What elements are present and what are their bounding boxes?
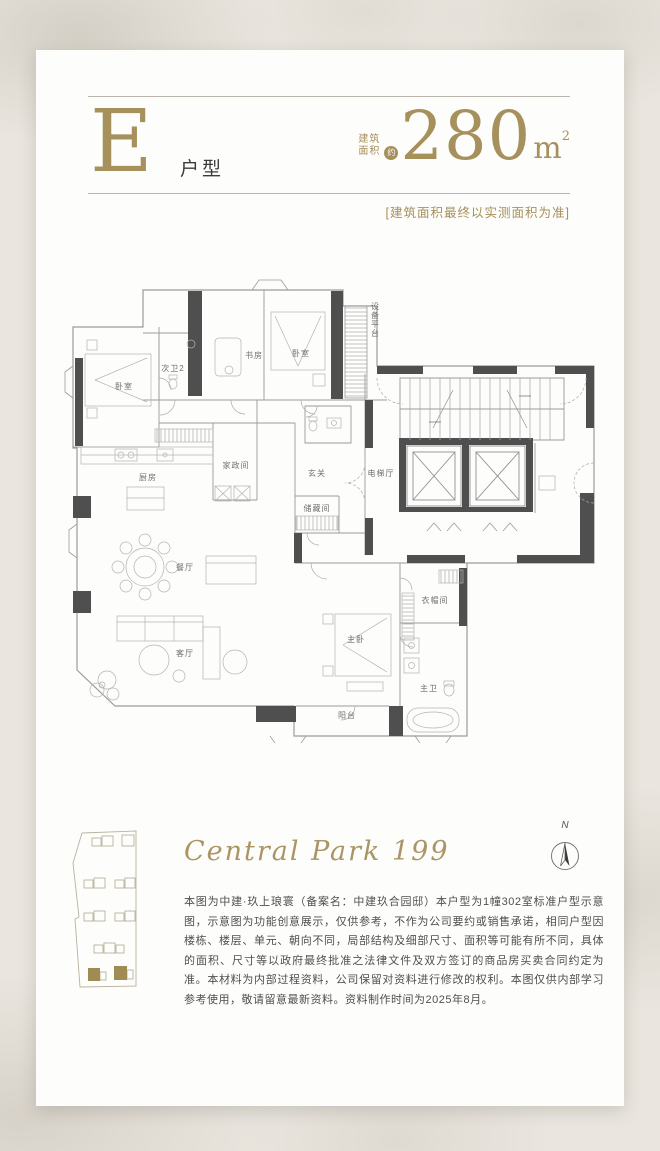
project-script-name: Central Park 199 <box>184 836 450 867</box>
room-label-elevator-hall: 电梯厅 <box>368 468 395 478</box>
meter-box <box>539 476 555 490</box>
site-buildings-outline <box>84 835 135 980</box>
room-label-bath2: 次卫2 <box>161 363 184 373</box>
compass-needle-light <box>561 843 566 866</box>
hall-dresser <box>155 429 213 442</box>
site-boundary <box>73 831 136 987</box>
master-bed-icon <box>323 614 391 691</box>
area-value: 280 <box>400 100 531 172</box>
plan-interior-walls <box>73 290 564 736</box>
room-label-foyer: 玄关 <box>308 468 326 478</box>
compass-north-label: N <box>561 820 569 831</box>
flyer-card: E 户型 建筑 面积 约 280 m2 [建筑面积最终以实测面积为准] <box>36 50 624 1106</box>
page-background: { "page": { "background": "#eae6df", "ca… <box>0 0 660 1151</box>
area-disclaimer: [建筑面积最终以实测面积为准] <box>386 202 570 221</box>
room-label-housekeeping: 家政间 <box>223 460 250 470</box>
area-unit-letter: m <box>533 131 561 166</box>
room-label-bedroom-left: 卧室 <box>115 381 133 391</box>
room-label-kitchen: 厨房 <box>139 472 157 482</box>
legal-disclaimer: 本图为中建·玖上琅寰（备案名：中建玖合园邸）本户型为1幢302室标准户型示意图，… <box>184 893 604 1010</box>
equipment-platform-hatch <box>345 306 367 398</box>
area-prefix-line2: 面积 <box>358 146 380 158</box>
guest-bath-fixtures <box>309 417 341 431</box>
area-prefix: 建筑 面积 <box>358 134 380 158</box>
compass-needle-dark <box>565 843 570 866</box>
area-group: 建筑 面积 约 280 m2 <box>358 100 570 172</box>
room-label-storage: 储藏间 <box>304 503 331 513</box>
room-label-living: 客厅 <box>176 648 194 658</box>
washer-icons <box>215 486 250 501</box>
area-prefix-line1: 建筑 <box>358 134 380 146</box>
compass-icon: N <box>543 816 587 882</box>
site-keyplan <box>60 823 160 998</box>
room-label-balcony: 阳台 <box>338 710 356 720</box>
room-label-bedroom2: 卧室 <box>292 348 310 358</box>
area-approx-badge: 约 <box>384 146 398 160</box>
room-labels: 卧室 次卫2 书房 卧室 设备平台 厨房 家政间 玄关 电梯厅 储藏间 餐厅 客… <box>115 301 449 720</box>
room-label-study: 书房 <box>245 350 263 360</box>
room-label-dining: 餐厅 <box>176 563 194 572</box>
room-label-closet: 衣帽间 <box>422 595 449 605</box>
floorplan-drawing: 卧室 次卫2 书房 卧室 设备平台 厨房 家政间 玄关 电梯厅 储藏间 餐厅 客… <box>55 278 605 743</box>
header-bottom-rule <box>88 193 570 194</box>
bed-left-icon <box>85 340 151 418</box>
area-unit-exponent: 2 <box>562 129 570 144</box>
closet-wardrobe <box>402 593 414 640</box>
area-unit: m2 <box>533 120 570 166</box>
furniture <box>81 312 555 732</box>
room-label-equipment-platform: 设备平台 <box>371 301 380 338</box>
louver-vents <box>427 523 517 531</box>
desk-icon <box>215 338 241 376</box>
storage-shelf <box>296 516 338 530</box>
room-label-master-bedroom: 主卧 <box>347 634 365 644</box>
closet-shelf <box>439 570 463 583</box>
unit-type-label: 户型 <box>180 154 224 181</box>
unit-letter: E <box>90 94 153 190</box>
room-label-master-bath: 主卫 <box>420 683 438 693</box>
site-buildings-highlighted <box>88 966 127 981</box>
bay-windows <box>65 280 451 743</box>
